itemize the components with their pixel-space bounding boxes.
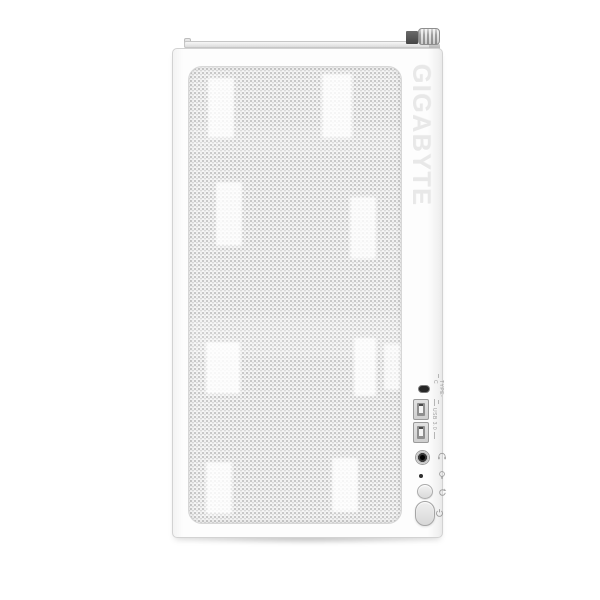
power-button <box>415 501 435 526</box>
headphone-icon <box>437 451 447 461</box>
reset-button <box>417 484 433 499</box>
pc-case-front-panel: GIGABYTE TYPE-C USB 3.0 <box>172 48 443 538</box>
thumbscrew-mount <box>406 31 418 44</box>
product-photo-scene: GIGABYTE TYPE-C USB 3.0 <box>0 0 600 600</box>
usb-a-port-1 <box>413 399 429 420</box>
power-icon <box>435 508 445 518</box>
usb-label: USB 3.0 <box>431 397 437 447</box>
usb-a-tongue <box>419 406 423 413</box>
mesh-panel <box>188 66 402 524</box>
indicator-pinhole <box>419 474 423 478</box>
audio-jack <box>415 450 430 465</box>
brand-logo-text: GIGABYTE <box>405 64 435 279</box>
thumbscrew-knob <box>418 28 440 45</box>
bulb-icon <box>437 470 447 480</box>
top-rail <box>184 41 437 48</box>
reset-icon <box>438 488 448 498</box>
usb-a-tongue <box>419 429 423 436</box>
mesh-reflections <box>189 67 402 524</box>
usb-a-port-2 <box>413 422 429 443</box>
usb-type-c-port <box>418 385 430 393</box>
